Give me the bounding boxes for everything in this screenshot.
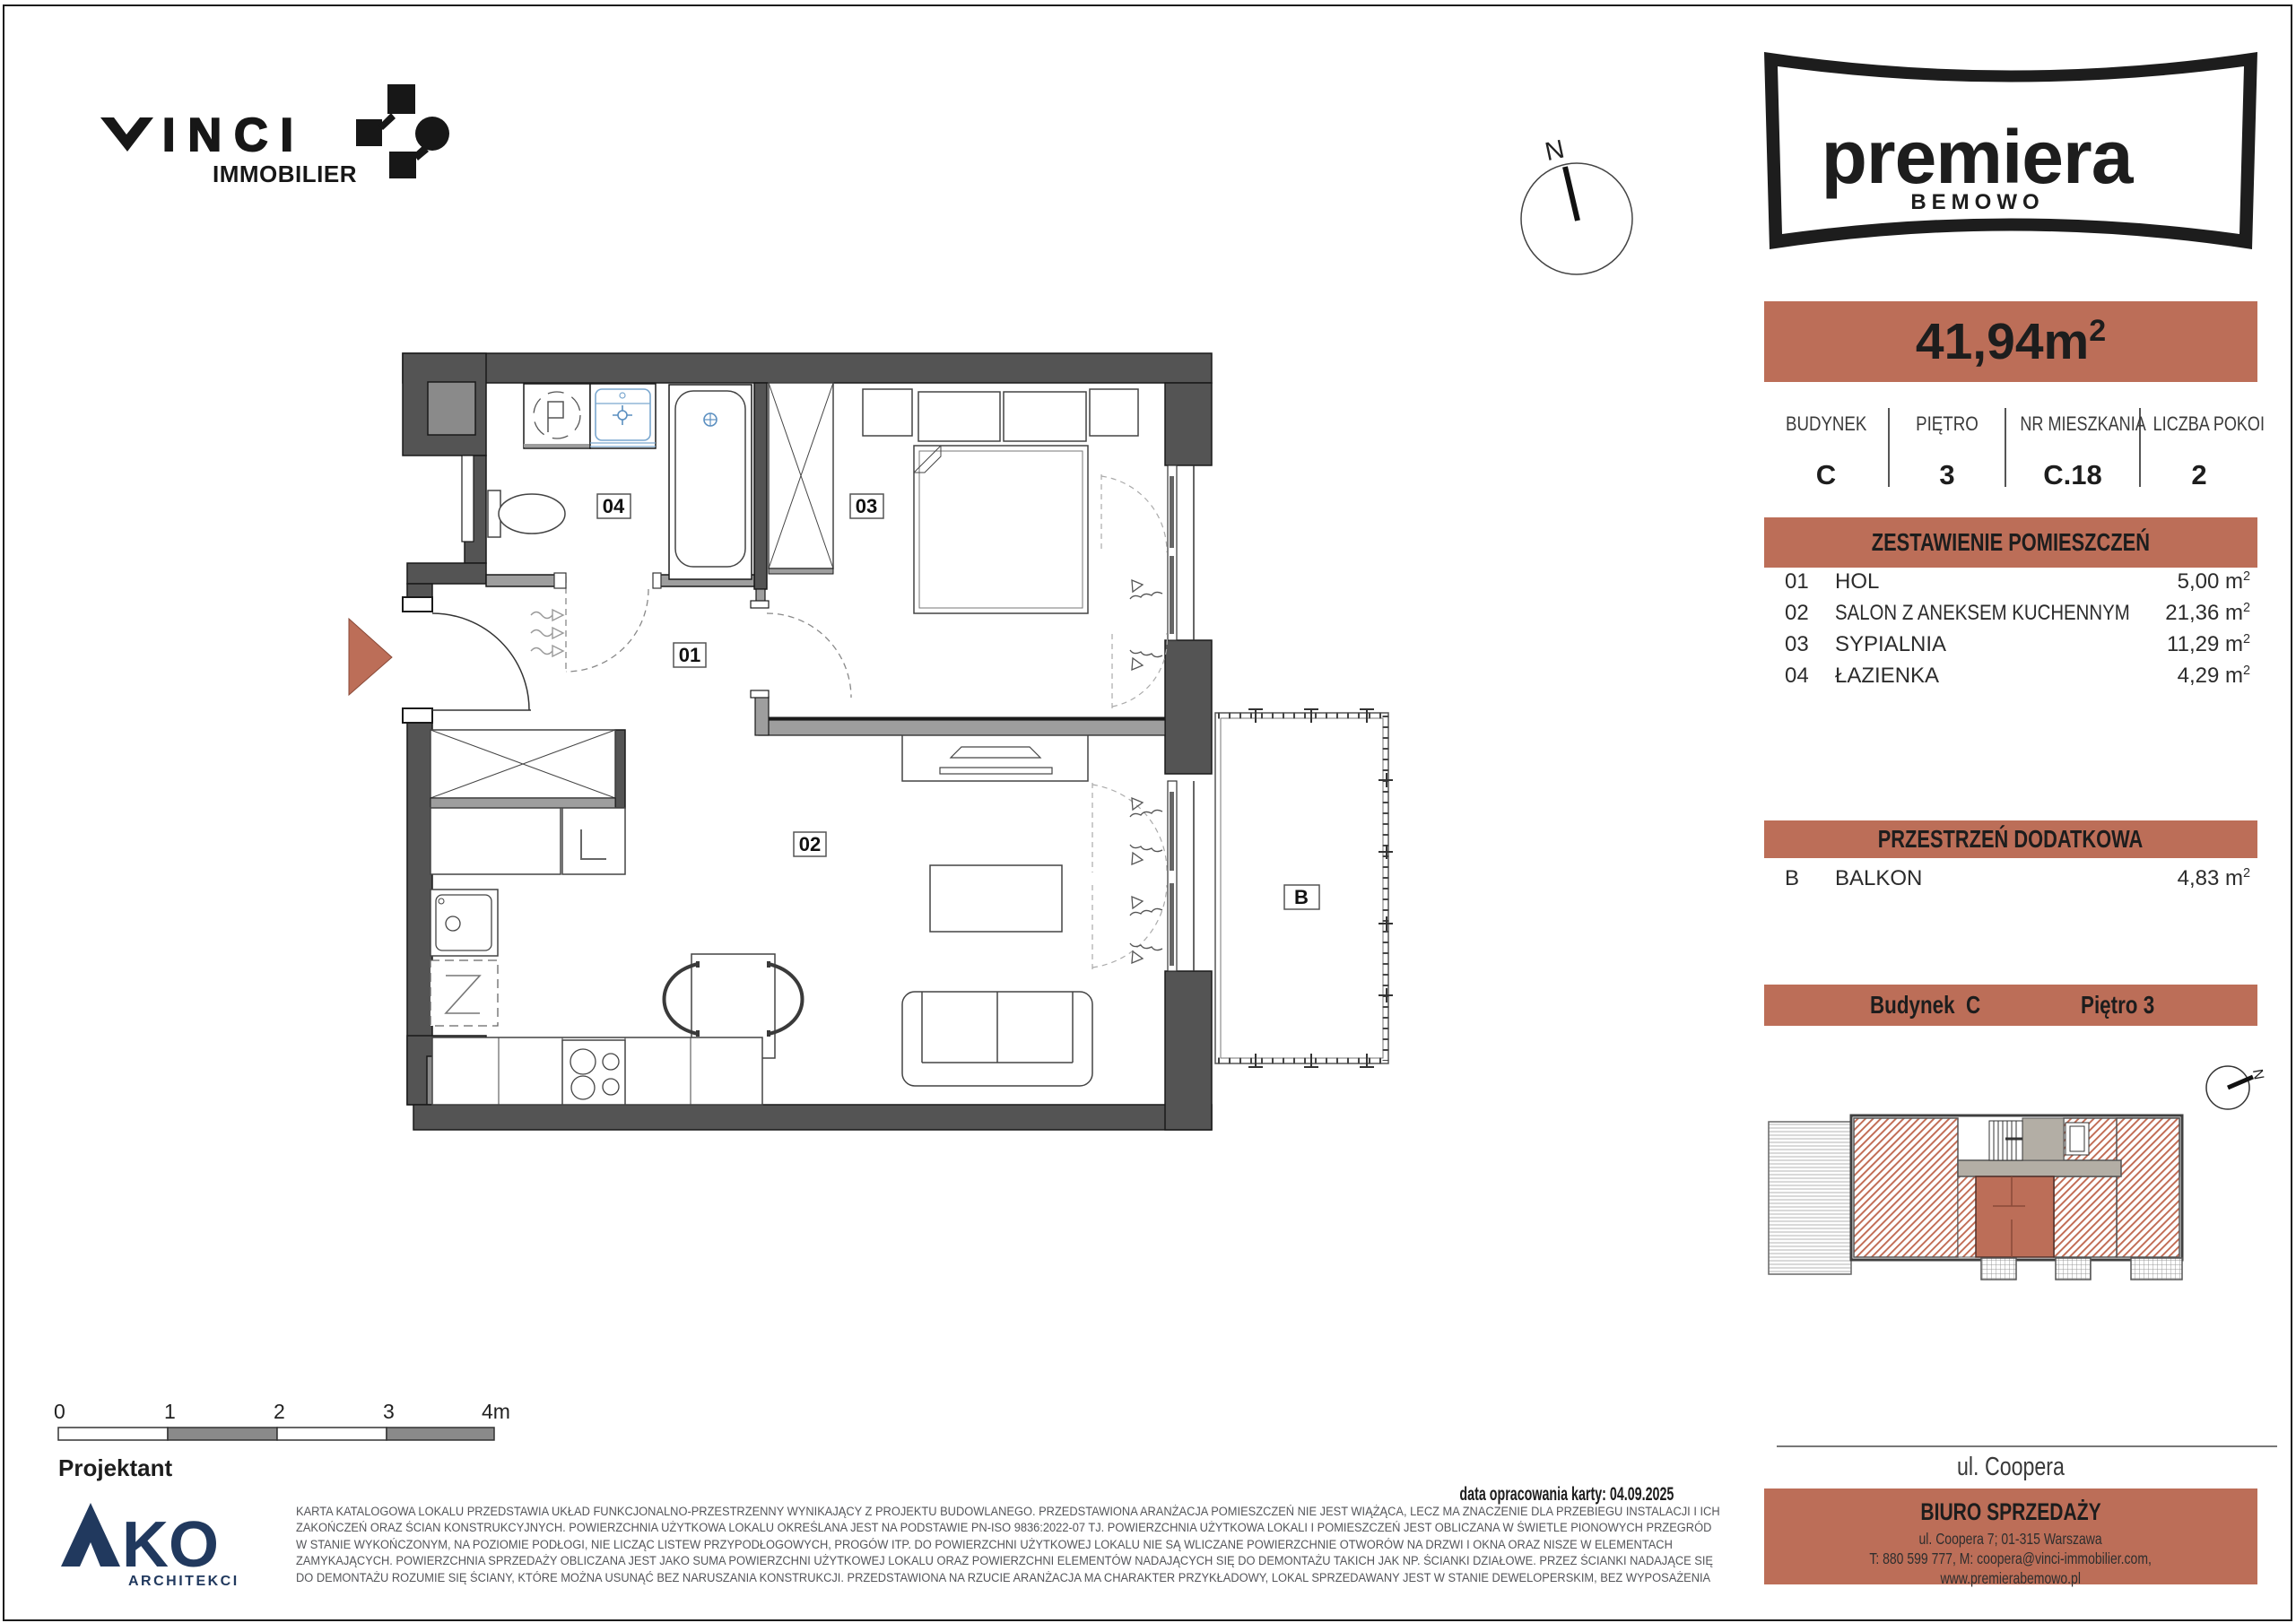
svg-text:BEMOWO: BEMOWO: [1910, 190, 2044, 214]
svg-text:02: 02: [799, 833, 821, 855]
svg-text:2: 2: [274, 1400, 285, 1423]
svg-text:N: N: [1543, 135, 1567, 167]
svg-text:0: 0: [54, 1400, 65, 1423]
svg-text:premiera: premiera: [1822, 115, 2135, 199]
svg-text:03: 03: [856, 495, 877, 517]
svg-text:ARCHITEKCI: ARCHITEKCI: [128, 1574, 239, 1589]
svg-text:3: 3: [383, 1400, 395, 1423]
svg-text:04: 04: [603, 495, 625, 517]
svg-text:4m: 4m: [482, 1400, 510, 1423]
svg-text:N: N: [2249, 1068, 2266, 1081]
svg-text:INCI: INCI: [162, 109, 306, 161]
svg-text:01: 01: [679, 644, 700, 666]
svg-text:IMMOBILIER: IMMOBILIER: [213, 161, 357, 187]
svg-text:1: 1: [164, 1400, 176, 1423]
svg-text:B: B: [1294, 886, 1309, 908]
svg-text:KO: KO: [122, 1509, 219, 1581]
